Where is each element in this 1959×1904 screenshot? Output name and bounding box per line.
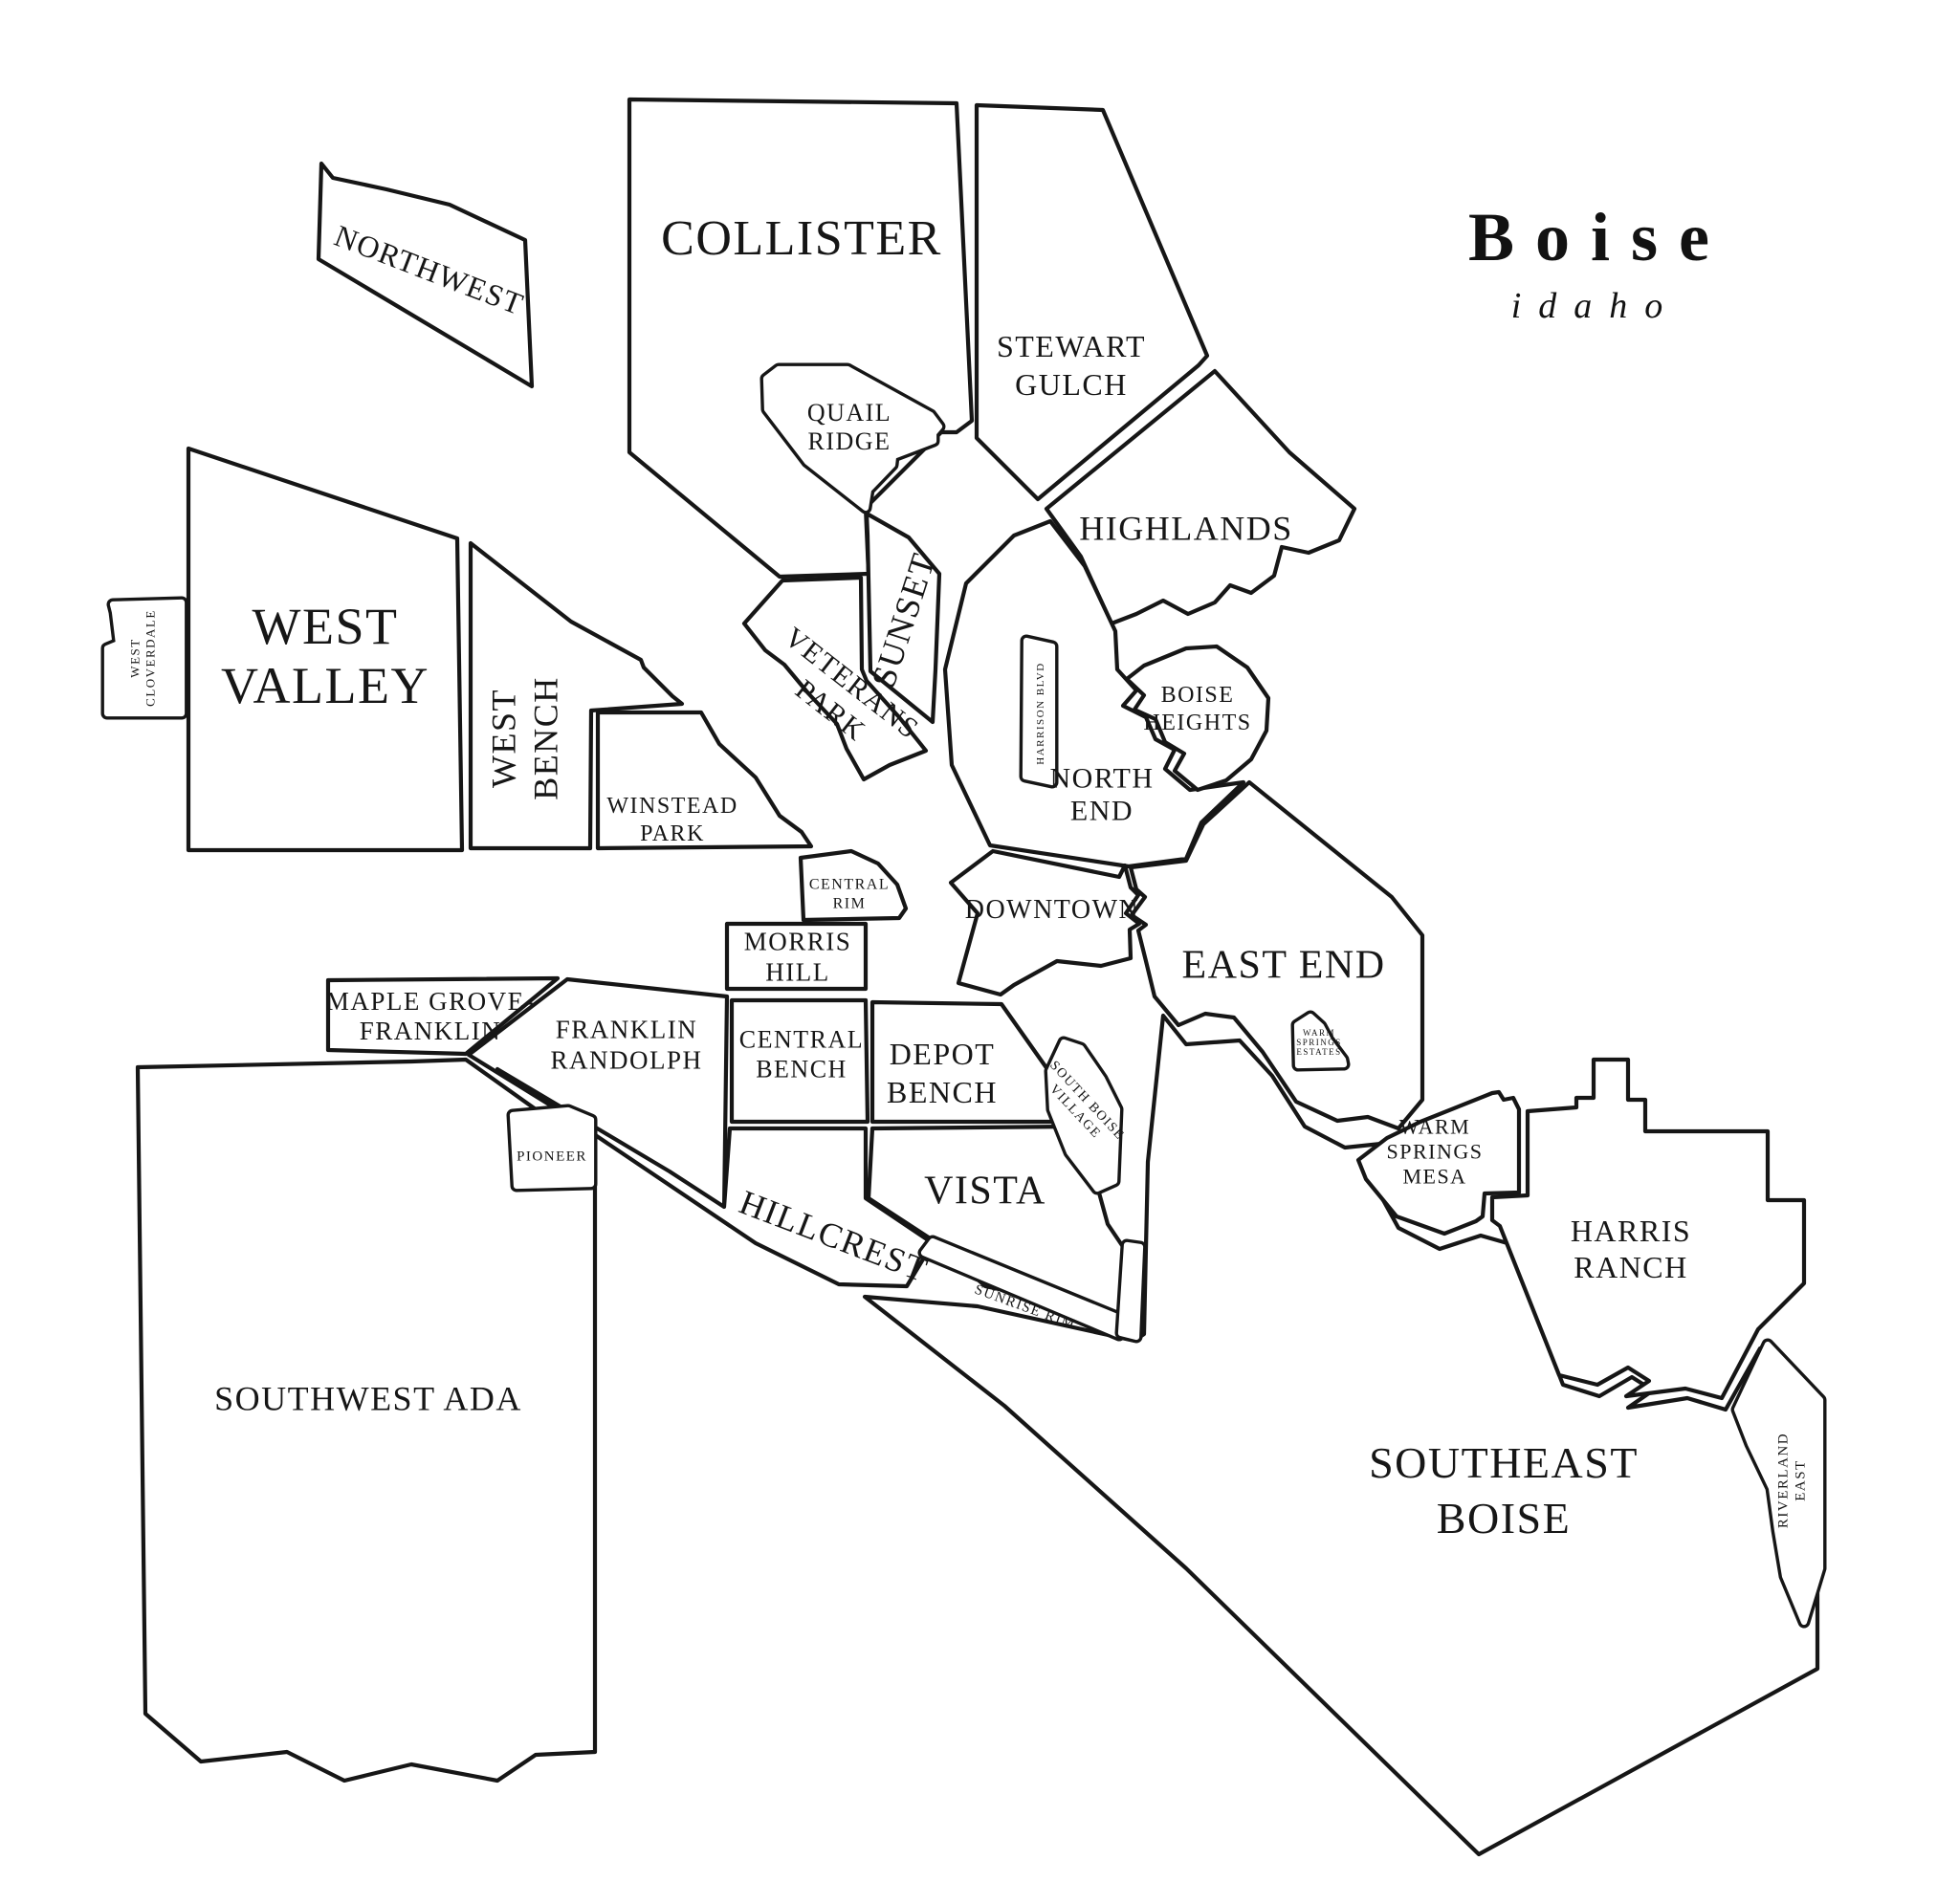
region-collister <box>629 99 972 577</box>
label-stewart-gulch-line2: GULCH <box>1015 367 1128 402</box>
corridor-sunrise-rim-spur <box>1121 1245 1140 1337</box>
label-depot-bench-line2: BENCH <box>887 1075 998 1109</box>
label-north-end-line2: END <box>1070 796 1134 827</box>
label-riverland-east-line1: RIVERLAND <box>1775 1433 1791 1528</box>
label-west-bench-line2: BENCH <box>527 676 565 800</box>
label-east-end-line1: EAST END <box>1181 944 1385 988</box>
label-southeast-boise-line2: BOISE <box>1437 1494 1571 1543</box>
map-title-state: idaho <box>1511 286 1681 326</box>
label-downtown: DOWNTOWN <box>965 895 1140 925</box>
label-warm-springs-estates-line3: ESTATES <box>1296 1047 1341 1057</box>
label-southwest-ada: SOUTHWEST ADA <box>214 1380 522 1418</box>
label-west-cloverdale-line2: CLOVERDALE <box>143 609 158 707</box>
label-morris-hill-line2: HILL <box>765 957 829 986</box>
label-highlands-line1: HIGHLANDS <box>1079 510 1293 548</box>
label-central-bench-line2: BENCH <box>756 1056 847 1083</box>
label-west-valley-line2: VALLEY <box>221 657 429 714</box>
label-maple-grove-franklin-line2: FRANKLIN <box>360 1017 502 1045</box>
label-stewart-gulch-line1: STEWART <box>997 329 1146 363</box>
label-winstead-park-line2: PARK <box>640 821 705 846</box>
label-east-end: EAST END <box>1181 944 1385 988</box>
label-pioneer-line1: PIONEER <box>517 1149 587 1164</box>
label-north-end-line1: NORTH <box>1049 763 1154 795</box>
label-downtown-line1: DOWNTOWN <box>965 895 1140 925</box>
label-franklin-randolph-line1: FRANKLIN <box>556 1015 698 1043</box>
label-franklin-randolph-line2: RANDOLPH <box>550 1045 702 1074</box>
label-boise-heights-line2: HEIGHTS <box>1143 711 1251 735</box>
label-warm-springs-estates-line1: WARM <box>1303 1028 1335 1038</box>
label-highlands: HIGHLANDS <box>1079 510 1293 548</box>
label-warm-springs-estates-line2: SPRINGS <box>1296 1038 1342 1047</box>
label-harrison-blvd: HARRISON BLVD <box>1035 662 1046 764</box>
label-warm-springs-mesa-line2: SPRINGS <box>1387 1140 1484 1164</box>
label-quail-ridge: QUAILRIDGE <box>807 399 891 455</box>
label-warm-springs-mesa-line1: WARM <box>1399 1115 1470 1139</box>
label-morris-hill-line1: MORRIS <box>744 927 852 955</box>
label-pioneer: PIONEER <box>517 1149 587 1164</box>
label-harris-ranch-line2: RANCH <box>1574 1250 1688 1284</box>
label-central-bench-line1: CENTRAL <box>739 1026 864 1054</box>
label-quail-ridge-line2: RIDGE <box>808 427 891 455</box>
label-collister: COLLISTER <box>661 211 942 266</box>
label-harris-ranch-line1: HARRIS <box>1571 1214 1691 1248</box>
label-harrison-blvd-line1: HARRISON BLVD <box>1035 662 1046 764</box>
label-west-cloverdale-line1: WEST <box>128 638 143 677</box>
map-title-city: Boise <box>1468 199 1730 275</box>
label-southeast-boise-line1: SOUTHEAST <box>1369 1438 1639 1487</box>
label-riverland-east-line2: EAST <box>1793 1459 1808 1501</box>
label-vista: VISTA <box>924 1170 1046 1214</box>
label-maple-grove-franklin-line1: MAPLE GROVE- <box>326 987 535 1016</box>
label-warm-springs-mesa-line3: MESA <box>1402 1165 1466 1189</box>
label-vista-line1: VISTA <box>924 1170 1046 1214</box>
boise-neighborhood-map: NORTHWESTCOLLISTERQUAILRIDGESTEWARTGULCH… <box>0 0 1959 1904</box>
label-boise-heights-line1: BOISE <box>1161 683 1235 708</box>
label-west-valley-line1: WEST <box>253 598 399 655</box>
label-central-rim-line1: CENTRAL <box>809 877 890 893</box>
label-depot-bench-line1: DEPOT <box>890 1037 996 1071</box>
label-winstead-park-line1: WINSTEAD <box>606 794 737 819</box>
label-collister-line1: COLLISTER <box>661 211 942 266</box>
label-warm-springs-estates: WARMSPRINGSESTATES <box>1296 1028 1342 1057</box>
label-southwest-ada-line1: SOUTHWEST ADA <box>214 1380 522 1418</box>
label-west-bench-line1: WEST <box>485 689 523 788</box>
label-central-rim-line2: RIM <box>833 896 867 912</box>
label-quail-ridge-line1: QUAIL <box>807 399 891 427</box>
